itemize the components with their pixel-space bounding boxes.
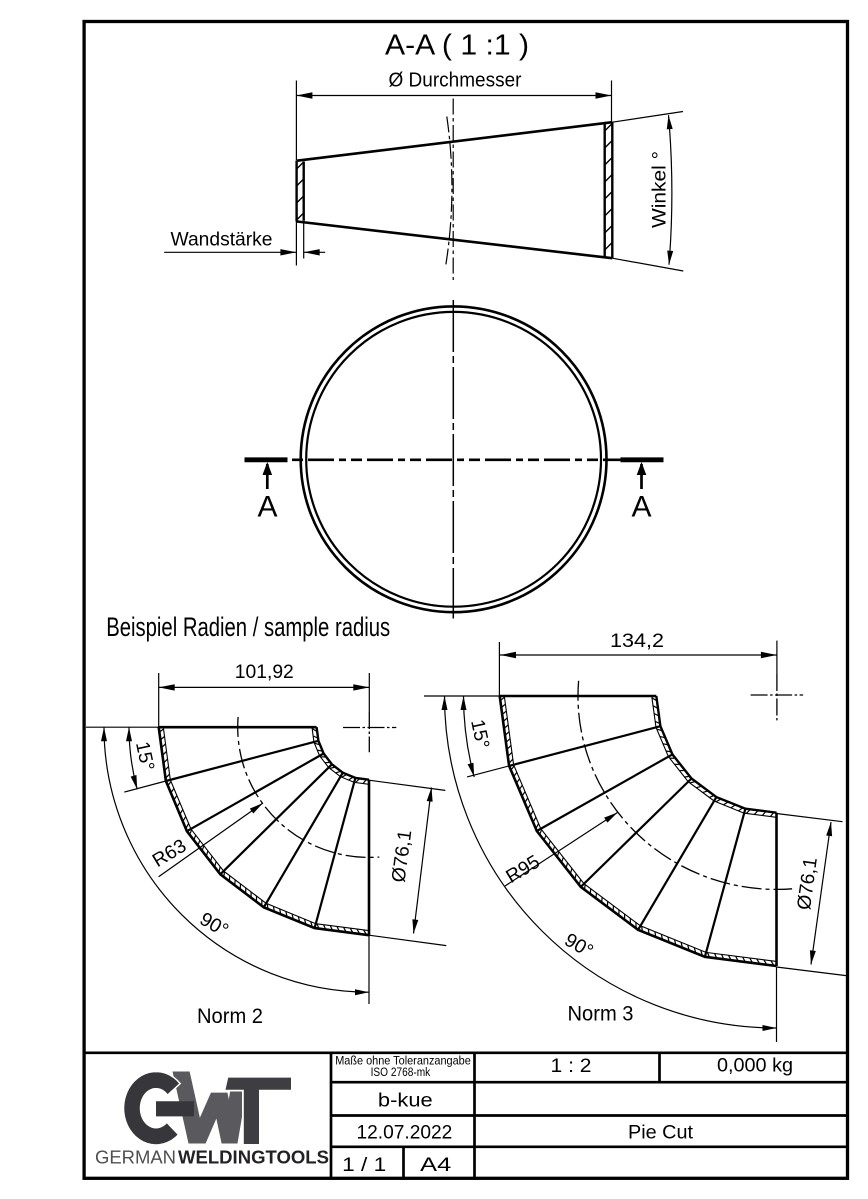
svg-text:b-kue: b-kue: [378, 1090, 433, 1112]
svg-text:Wandstärke: Wandstärke: [171, 229, 273, 251]
svg-text:ISO 2768-mk: ISO 2768-mk: [371, 1065, 431, 1079]
svg-text:Norm 2: Norm 2: [197, 1004, 263, 1028]
svg-text:GERMAN: GERMAN: [95, 1147, 176, 1168]
svg-text:A4: A4: [420, 1155, 451, 1176]
svg-text:Winkel °: Winkel °: [649, 151, 671, 228]
svg-text:WELDINGTOOLS: WELDINGTOOLS: [178, 1147, 329, 1168]
svg-text:Beispiel Radien / sample radiu: Beispiel Radien / sample radius: [106, 612, 390, 642]
svg-text:Pie Cut: Pie Cut: [628, 1123, 694, 1144]
svg-text:12.07.2022: 12.07.2022: [356, 1123, 452, 1144]
svg-text:A: A: [631, 491, 651, 524]
svg-text:A-A ( 1 :1 ): A-A ( 1 :1 ): [385, 30, 529, 62]
svg-text:1 / 1: 1 / 1: [342, 1155, 386, 1176]
svg-text:1 : 2: 1 : 2: [551, 1056, 592, 1077]
svg-text:Ø Durchmesser: Ø Durchmesser: [389, 69, 522, 92]
svg-text:101,92: 101,92: [235, 662, 294, 683]
svg-text:A: A: [257, 491, 277, 524]
svg-text:0,000 kg: 0,000 kg: [717, 1056, 793, 1077]
svg-text:Norm 3: Norm 3: [568, 1002, 634, 1026]
svg-text:134,2: 134,2: [610, 631, 664, 652]
